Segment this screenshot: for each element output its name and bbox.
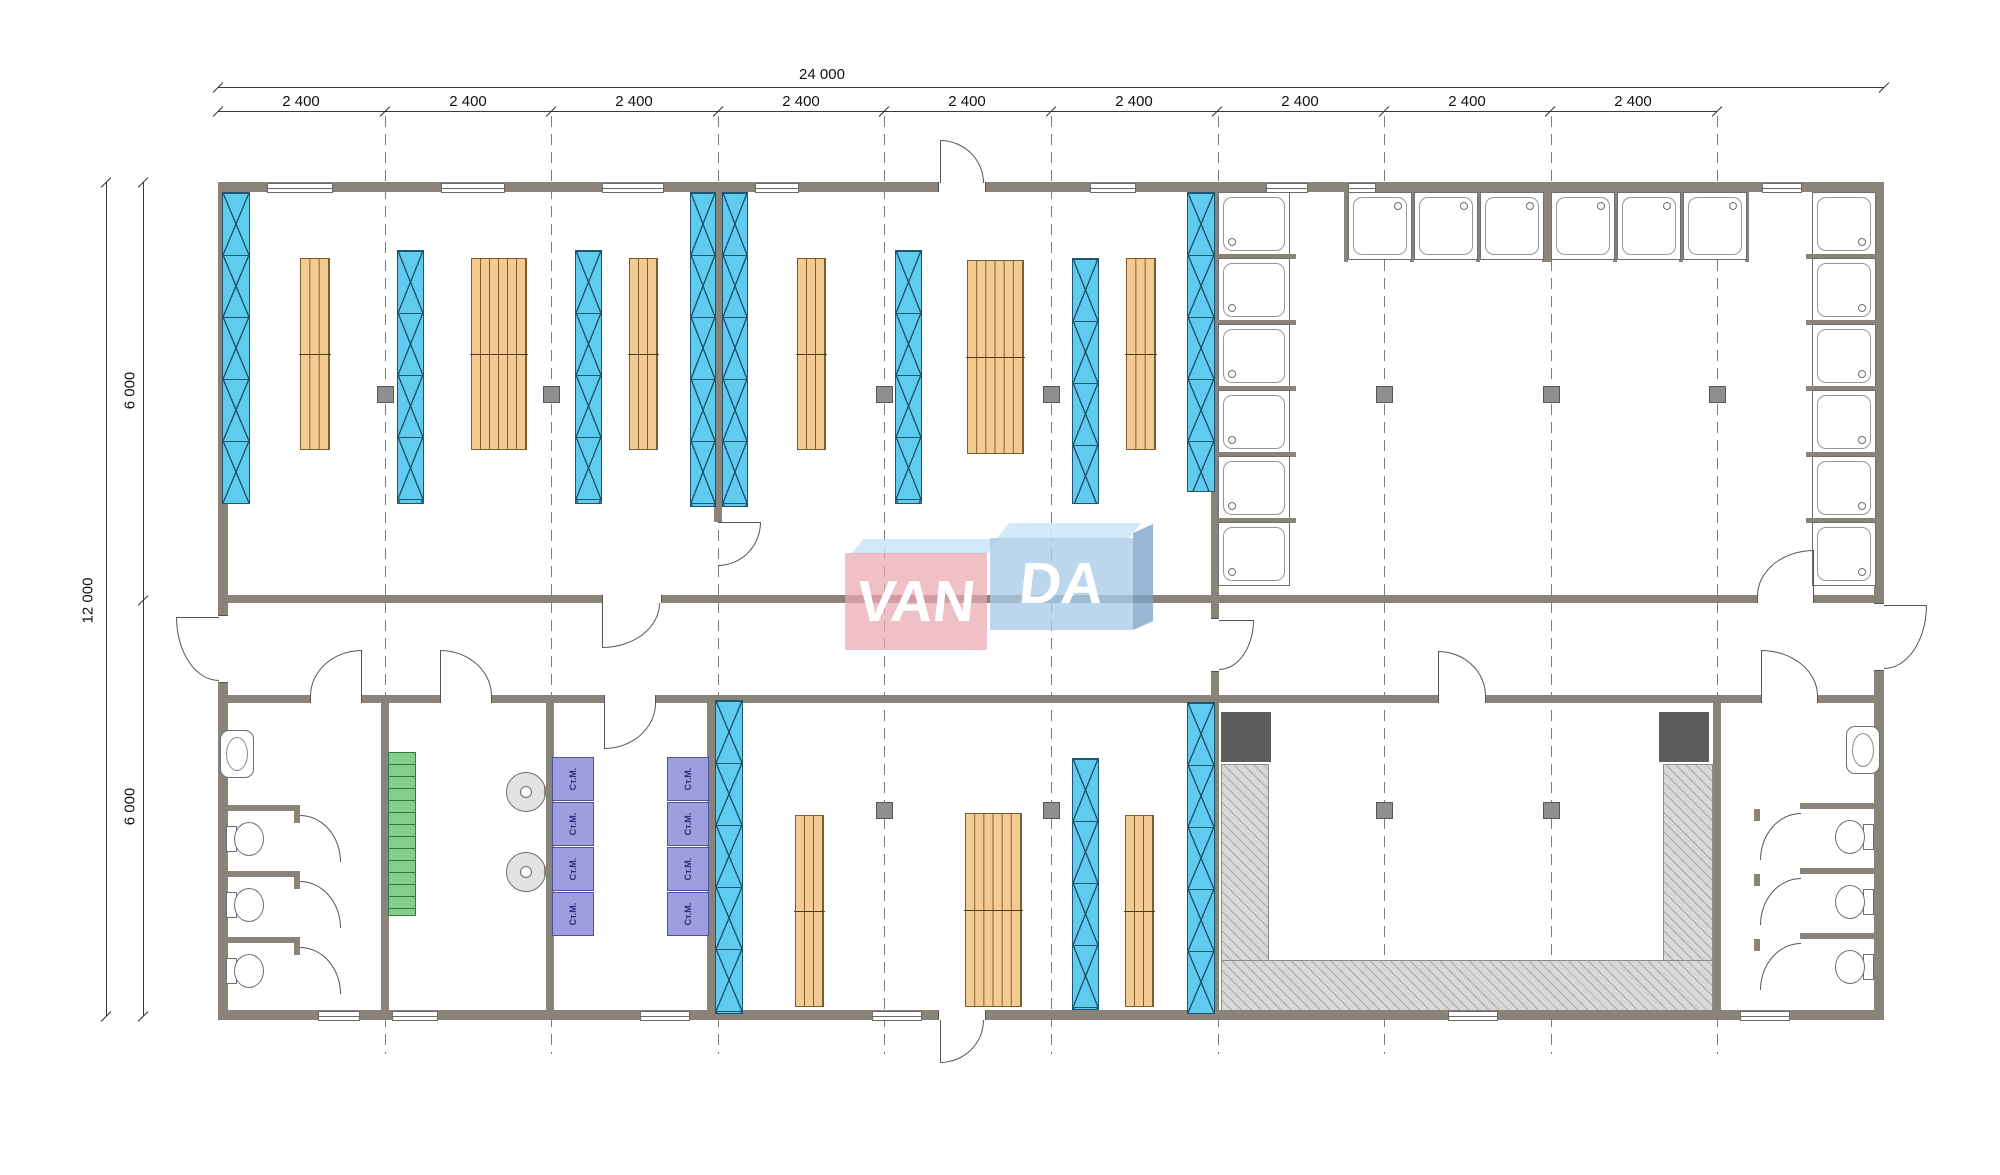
door-swing [300,815,341,862]
dim-line-top-total [218,87,1884,88]
blue-rack [722,192,748,507]
window [267,183,333,193]
blue-rack [222,192,250,504]
dim-top-segment: 2 400 [599,93,669,109]
floor-plan-canvas: 24 000 12 000 6 000 6 000 VAN DA Ст.М.Ст… [0,0,2000,1175]
shower-stall [1218,324,1290,388]
washing-machine: Ст.М. [667,757,709,801]
column-marker [1376,386,1393,403]
washing-machine-label: Ст.М. [683,903,693,926]
washing-machine-label: Ст.М. [683,768,693,791]
shower-stall [1551,192,1615,260]
sink [1846,726,1880,774]
drain-icon [1394,202,1402,210]
wall [1800,803,1874,809]
wood-rack [967,260,1024,454]
washing-machine-label: Ст.М. [568,903,578,926]
wood-rack [1125,815,1154,1007]
shower-stall [1480,192,1544,260]
column-marker [377,386,394,403]
column-marker [1043,386,1060,403]
dim-top-segment: 2 400 [1432,93,1502,109]
washing-machine: Ст.М. [667,847,709,891]
wood-rack [300,258,330,450]
dim-left-segment-1: 6 000 [122,346,139,436]
wall [1800,868,1874,874]
dim-left-total: 12 000 [80,556,97,646]
door-swing [1761,650,1818,696]
shower-stall [1812,456,1876,520]
window [602,183,664,193]
blue-rack [397,250,424,504]
dim-top-segment: 2 400 [1099,93,1169,109]
drain-icon [1858,436,1866,444]
window [1090,183,1136,193]
platform-hatch [1221,960,1713,1012]
washing-machine-label: Ст.М. [568,768,578,791]
drain-icon [1858,370,1866,378]
door-swing [1760,943,1801,990]
door-opening [604,695,656,703]
shower-stall [1812,390,1876,454]
drain-icon [1228,304,1236,312]
window [1448,1011,1498,1021]
sink-basin [1852,733,1874,767]
shower-stall [1414,192,1478,260]
wood-rack-midline [470,354,528,355]
drain-icon [1858,304,1866,312]
door-swing [1760,878,1801,925]
column-marker [1043,802,1060,819]
washing-machine: Ст.М. [552,757,594,801]
blue-rack [1072,258,1099,504]
shower-stall [1683,192,1747,260]
water-heater-mount [544,866,548,876]
wood-rack [1126,258,1156,450]
toilet [234,888,264,922]
drain-icon [1663,202,1671,210]
door-opening [938,1010,986,1020]
door-opening [218,615,228,683]
door-opening [1211,618,1219,672]
wood-rack [965,813,1022,1007]
drain-icon [1858,502,1866,510]
water-heater [506,852,546,892]
door-swing [718,522,761,566]
water-heater-mount [544,786,548,796]
drain-icon [1228,436,1236,444]
door-swing [1760,813,1801,860]
shower-stall [1812,522,1876,586]
drain-icon [1526,202,1534,210]
window [755,183,799,193]
washing-machine: Ст.М. [667,892,709,936]
wall [1754,939,1760,951]
wood-rack-midline [966,357,1025,358]
column-marker [1376,802,1393,819]
logo-top-flap-right [996,523,1141,539]
dim-left-segment-2: 6 000 [122,762,139,852]
window [1740,1011,1790,1021]
shower-stall [1617,192,1681,260]
column-marker [876,802,893,819]
sink [220,730,254,778]
door-opening [938,182,986,192]
dim-top-segment: 2 400 [1265,93,1335,109]
shower-stall [1812,258,1876,322]
logo-text-da: DA [985,538,1138,630]
door-opening [1438,695,1486,703]
stairs [388,752,416,916]
washing-machine: Ст.М. [667,802,709,846]
door-swing [604,703,656,749]
equipment-dark [1221,712,1271,762]
drain-icon [1228,370,1236,378]
wall [218,1010,1884,1020]
window [1762,183,1802,193]
wood-rack [795,815,824,1007]
door-swing [1884,605,1927,669]
dim-top-segment: 2 400 [433,93,503,109]
column-marker [1709,386,1726,403]
window [318,1011,360,1021]
washing-machine: Ст.М. [552,847,594,891]
shower-stall [1218,390,1290,454]
wood-rack-midline [796,354,827,355]
water-heater-core [520,786,532,798]
drain-icon [1729,202,1737,210]
shower-stall [1812,324,1876,388]
dim-top-segment: 2 400 [1598,93,1668,109]
wall [228,805,300,811]
blue-rack [895,250,922,504]
dim-top-segment: 2 400 [266,93,336,109]
shower-stall [1348,192,1412,260]
washing-machine: Ст.М. [552,802,594,846]
door-swing [1757,550,1814,596]
dim-line-top-segments [218,111,1717,112]
equipment-dark [1659,712,1709,762]
drain-icon [1858,238,1866,246]
door-opening [1757,595,1814,603]
wood-rack [471,258,527,450]
wood-rack-midline [1125,354,1157,355]
dim-top-segment: 2 400 [766,93,836,109]
drain-icon [1858,568,1866,576]
door-opening [440,695,492,703]
column-marker [876,386,893,403]
wood-rack-midline [1124,911,1155,912]
wall [1754,809,1760,821]
shower-stall [1218,456,1290,520]
toilet [1835,950,1865,984]
door-swing [1219,620,1254,670]
door-opening [1761,695,1818,703]
drain-icon [1228,502,1236,510]
door-swing [1438,651,1486,696]
blue-rack [1187,702,1215,1014]
door-swing [940,140,984,183]
window [640,1011,690,1021]
window [872,1011,922,1021]
washing-machine: Ст.М. [552,892,594,936]
wood-rack-midline [299,354,331,355]
blue-rack [1187,192,1215,492]
toilet [234,822,264,856]
blue-rack [715,700,743,1014]
door-opening [310,695,362,703]
blue-rack [1072,758,1099,1010]
drain-icon [1228,238,1236,246]
wood-rack-midline [794,911,825,912]
door-opening [602,595,662,603]
logo-top-flap-left [851,539,1000,554]
wall [228,871,300,877]
shower-stall [1218,522,1290,586]
sink-basin [226,737,248,771]
drain-icon [1597,202,1605,210]
door-swing [940,1020,984,1063]
toilet [1835,885,1865,919]
shower-stall [1218,258,1290,322]
wall [228,937,300,943]
shower-stall [1812,192,1876,256]
wood-rack-midline [964,910,1023,911]
washing-machine-label: Ст.М. [568,813,578,836]
window [392,1011,438,1021]
dim-top-total: 24 000 [762,66,882,83]
wall [1754,874,1760,886]
shower-stall [1218,192,1290,256]
dim-top-segment: 2 400 [932,93,1002,109]
blue-rack [575,250,602,504]
door-swing [300,947,341,994]
drain-icon [1228,568,1236,576]
washing-machine-label: Ст.М. [568,858,578,881]
washing-machine-label: Ст.М. [683,813,693,836]
water-heater [506,772,546,812]
wood-rack [797,258,826,450]
door-opening [1874,603,1884,671]
water-heater-core [520,866,532,878]
wall [1800,933,1874,939]
door-swing [300,881,341,928]
column-marker [543,386,560,403]
wall [1713,703,1721,1010]
blue-rack [690,192,716,507]
door-swing [310,650,362,696]
window [441,183,505,193]
door-swing [440,650,492,696]
dim-line-left-total [106,182,107,1016]
door-swing [176,617,219,681]
toilet [1835,820,1865,854]
wood-rack [629,258,658,450]
wood-rack-midline [628,354,659,355]
washing-machine-label: Ст.М. [683,858,693,881]
column-marker [1543,802,1560,819]
column-marker [1543,386,1560,403]
toilet [234,954,264,988]
door-swing [602,603,660,648]
logo-text-van: VAN [840,553,992,650]
drain-icon [1460,202,1468,210]
